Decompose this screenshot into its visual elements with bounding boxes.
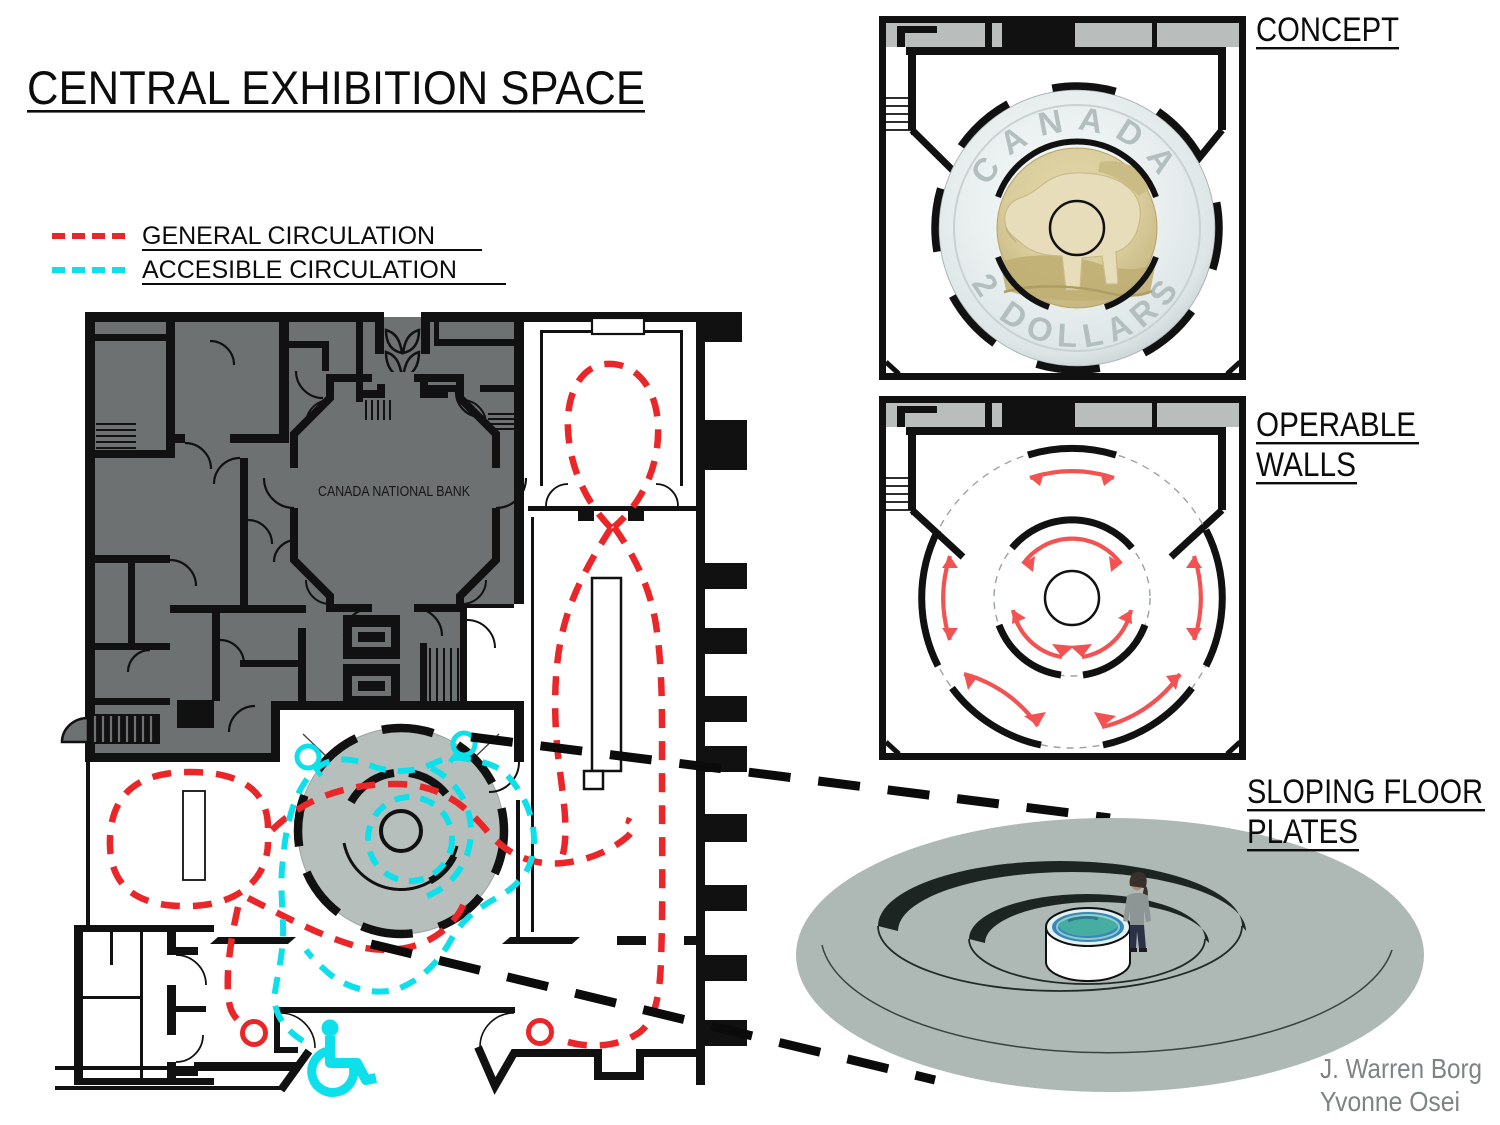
svg-text:CANADA NATIONAL BANK: CANADA NATIONAL BANK — [318, 484, 470, 500]
svg-text:PLATES: PLATES — [1247, 813, 1358, 851]
svg-text:WALLS: WALLS — [1256, 446, 1356, 484]
svg-text:Yvonne Osei: Yvonne Osei — [1320, 1086, 1460, 1117]
svg-text:OPERABLE: OPERABLE — [1256, 406, 1416, 444]
svg-text:CONCEPT: CONCEPT — [1256, 11, 1399, 49]
svg-text:J. Warren Borg: J. Warren Borg — [1320, 1053, 1482, 1084]
svg-text:GENERAL CIRCULATION: GENERAL CIRCULATION — [142, 222, 435, 250]
svg-text:SLOPING FLOOR: SLOPING FLOOR — [1247, 773, 1483, 811]
svg-text:CENTRAL EXHIBITION SPACE: CENTRAL EXHIBITION SPACE — [27, 61, 645, 114]
svg-text:ACCESIBLE CIRCULATION: ACCESIBLE CIRCULATION — [142, 256, 457, 284]
